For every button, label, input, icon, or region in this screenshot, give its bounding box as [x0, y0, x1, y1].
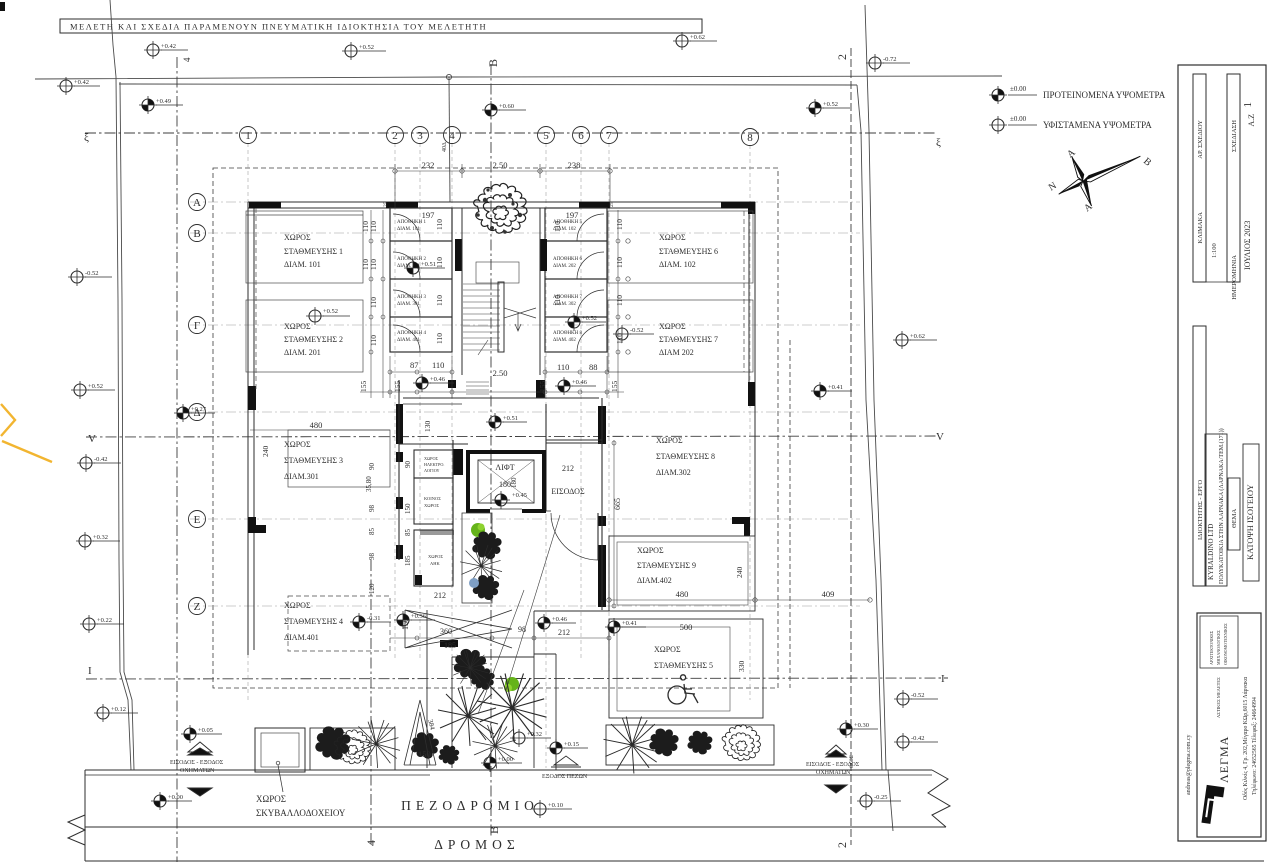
svg-text:0.60Σ: 0.60Σ: [849, 755, 855, 768]
svg-text:ΠΟΛΥΚΑΤΟΙΚΙΑ ΣΤΗΝ ΛΑΡΝΑΚΑ (ΛΑΡ: ΠΟΛΥΚΑΤΟΙΚΙΑ ΣΤΗΝ ΛΑΡΝΑΚΑ (ΛΑΡΝΑΚΑ/ΤΕΜ.(…: [1218, 428, 1225, 584]
svg-text:+0.36: +0.36: [411, 613, 427, 620]
svg-text:ΧΩΡΟΣ: ΧΩΡΟΣ: [284, 601, 311, 610]
svg-text:ΧΩΡΟΣ: ΧΩΡΟΣ: [284, 440, 311, 449]
svg-text:110: 110: [435, 295, 444, 306]
svg-text:ΣΤΑΘΜΕΥΣΗΣ 9: ΣΤΑΘΜΕΥΣΗΣ 9: [637, 561, 696, 570]
svg-text:ΣΤΑΘΜΕΥΣΗΣ 8: ΣΤΑΘΜΕΥΣΗΣ 8: [656, 452, 715, 461]
svg-text:212: 212: [562, 464, 574, 473]
svg-text:ΔΙΑΜ. 102: ΔΙΑΜ. 102: [659, 260, 696, 269]
svg-text:ΔΙΑΜ 202: ΔΙΑΜ 202: [659, 348, 694, 357]
svg-text:232: 232: [422, 160, 435, 170]
svg-text:ΑΠΟΘΗΚΗ 8: ΑΠΟΘΗΚΗ 8: [553, 331, 583, 336]
svg-text:87: 87: [410, 360, 419, 370]
svg-text:360: 360: [440, 627, 452, 636]
svg-text:+0.10: +0.10: [548, 802, 563, 809]
svg-text:1:100: 1:100: [1211, 243, 1218, 258]
svg-text:ΣΚΥΒΑΛΛΟΔΟΧΕΙΟΥ: ΣΚΥΒΑΛΛΟΔΟΧΕΙΟΥ: [256, 808, 346, 818]
svg-text:+0.46: +0.46: [572, 379, 588, 386]
svg-text:±0.00: ±0.00: [1010, 115, 1027, 123]
svg-text:-0.31: -0.31: [367, 615, 381, 622]
svg-text:197: 197: [422, 210, 435, 220]
svg-text:ΣΧΕΔΙΑΣΗ: ΣΧΕΔΙΑΣΗ: [1231, 120, 1238, 152]
svg-text:25: 25: [383, 201, 389, 207]
svg-text:+0.52: +0.52: [582, 315, 597, 322]
svg-text:4: 4: [364, 840, 378, 846]
svg-text:V: V: [88, 433, 96, 445]
svg-text:Γ: Γ: [194, 320, 200, 332]
svg-text:2: 2: [835, 54, 849, 60]
svg-text:+0.12: +0.12: [111, 706, 126, 713]
svg-text:ΛΙΦΤ: ΛΙΦΤ: [495, 463, 514, 472]
svg-text:-0.72: -0.72: [883, 56, 897, 63]
svg-text:+0.52: +0.52: [323, 308, 338, 315]
svg-text:212: 212: [558, 628, 570, 637]
svg-text:40Δ: 40Δ: [442, 142, 448, 152]
svg-text:110: 110: [553, 221, 562, 232]
svg-text:Ι: Ι: [941, 673, 945, 685]
svg-text:Ζ: Ζ: [194, 601, 201, 613]
svg-text:Ι: Ι: [88, 665, 92, 677]
svg-text:+0.42: +0.42: [161, 43, 176, 50]
svg-text:+0.46: +0.46: [430, 376, 446, 383]
svg-text:ΕΙΣΟΔΟΣ: ΕΙΣΟΔΟΣ: [551, 487, 585, 496]
svg-text:ξ: ξ: [936, 137, 941, 149]
svg-text:185: 185: [444, 641, 456, 650]
svg-text:1: 1: [1242, 102, 1254, 108]
svg-text:andreas@plegma.com.cy: andreas@plegma.com.cy: [1186, 734, 1192, 795]
svg-text:2.50: 2.50: [493, 160, 508, 170]
svg-text:1: 1: [245, 130, 251, 142]
svg-text:ΙΟΥΛΙΟΣ 2023: ΙΟΥΛΙΟΣ 2023: [1243, 221, 1252, 270]
svg-text:ΔΙΑΜ.301: ΔΙΑΜ.301: [284, 472, 319, 481]
svg-text:6: 6: [578, 130, 584, 142]
svg-text:110: 110: [432, 360, 444, 370]
svg-text:197: 197: [566, 210, 579, 220]
svg-text:500: 500: [680, 622, 693, 632]
svg-text:-0.25: -0.25: [874, 794, 888, 801]
svg-text:Α: Α: [193, 197, 201, 209]
svg-text:ΗΛΕΚΤΡΟ.: ΗΛΕΚΤΡΟ.: [424, 462, 444, 467]
svg-text:238: 238: [568, 160, 581, 170]
svg-text:2: 2: [392, 130, 398, 142]
svg-text:180: 180: [510, 477, 518, 488]
svg-text:ΣΤΑΘΜΕΥΣΗΣ 5: ΣΤΑΘΜΕΥΣΗΣ 5: [654, 661, 713, 670]
svg-text:ΕΙΣΟΔΟΣ - ΕΞΟΔΟΣ: ΕΙΣΟΔΟΣ - ΕΞΟΔΟΣ: [170, 760, 224, 766]
svg-text:-0.52: -0.52: [85, 270, 99, 277]
svg-text:ΔΙΑΜ.402: ΔΙΑΜ.402: [637, 576, 672, 585]
svg-text:Β: Β: [193, 228, 200, 240]
svg-text:110: 110: [615, 295, 624, 306]
svg-text:240: 240: [735, 567, 744, 579]
svg-text:+0.41: +0.41: [828, 384, 843, 391]
svg-text:ΚΟΙΝΟΣ: ΚΟΙΝΟΣ: [424, 496, 441, 501]
svg-text:85: 85: [368, 528, 376, 536]
svg-text:88: 88: [589, 362, 598, 372]
svg-text:KYRALDINO LTD: KYRALDINO LTD: [1207, 524, 1215, 580]
svg-text:110: 110: [361, 221, 370, 232]
svg-text:-0.42: -0.42: [94, 456, 108, 463]
svg-text:ΔΙΑΜ. 201: ΔΙΑΜ. 201: [284, 348, 321, 357]
svg-text:480: 480: [310, 420, 323, 430]
svg-text:Οδός Κιλκίς 4, Γρ. 202,Μέγαρο: Οδός Κιλκίς 4, Γρ. 202,Μέγαρο ΚΩρ,6015 Λ…: [1243, 677, 1249, 800]
svg-text:110: 110: [369, 297, 378, 308]
svg-text:185: 185: [404, 555, 412, 566]
svg-text:ΧΩΡΟΣ: ΧΩΡΟΣ: [659, 233, 686, 242]
svg-text:5: 5: [543, 130, 549, 142]
svg-text:ΧΩΡΟΣ: ΧΩΡΟΣ: [654, 645, 681, 654]
svg-text:+0.60: +0.60: [499, 103, 514, 110]
svg-text:25: 25: [609, 201, 615, 207]
svg-text:-0.52: -0.52: [911, 692, 925, 699]
svg-text:+0.62: +0.62: [910, 333, 925, 340]
svg-text:+0.51: +0.51: [503, 415, 518, 422]
svg-text:+0.62: +0.62: [690, 34, 705, 41]
svg-text:ΑΣΤΙΚΕΣ ΜΕΛΕΤΕΣ: ΑΣΤΙΚΕΣ ΜΕΛΕΤΕΣ: [1216, 677, 1221, 718]
svg-text:ΟΧΗΜΑΤΩΝ: ΟΧΗΜΑΤΩΝ: [816, 770, 851, 776]
svg-text:+0.00: +0.00: [498, 756, 513, 763]
svg-text:ΚΑΤΟΨΗ ΙΣΟΓΕΙΟΥ: ΚΑΤΟΨΗ ΙΣΟΓΕΙΟΥ: [1245, 484, 1255, 560]
svg-text:ΧΩΡΟΣ: ΧΩΡΟΣ: [659, 322, 686, 331]
svg-text:ΔΙΑΜ.302: ΔΙΑΜ.302: [656, 468, 691, 477]
svg-text:ΠΕΖΟΔΡΟΜΙΟ: ΠΕΖΟΔΡΟΜΙΟ: [401, 798, 539, 813]
svg-text:V: V: [936, 431, 944, 443]
svg-text:+0.27: +0.27: [191, 406, 207, 413]
svg-text:ΑΠΟΘΗΚΗ 4: ΑΠΟΘΗΚΗ 4: [397, 331, 427, 336]
svg-text:+0.51: +0.51: [421, 261, 436, 268]
svg-text:ΣΤΑΘΜΕΥΣΗΣ 1: ΣΤΑΘΜΕΥΣΗΣ 1: [284, 247, 343, 256]
svg-text:2: 2: [835, 842, 849, 848]
svg-text:ΧΩΡΟΣ: ΧΩΡΟΣ: [637, 546, 664, 555]
svg-text:ΧΩΡΟΣ: ΧΩΡΟΣ: [284, 322, 311, 331]
svg-text:+0.05: +0.05: [198, 727, 213, 734]
svg-text:+0.49: +0.49: [156, 98, 171, 105]
svg-text:Ε: Ε: [194, 514, 201, 526]
svg-text:110: 110: [369, 259, 378, 270]
svg-text:110: 110: [435, 257, 444, 268]
svg-text:ΟΧΗΜΑΤΩΝ: ΟΧΗΜΑΤΩΝ: [180, 768, 215, 774]
svg-text:+0.30: +0.30: [854, 722, 869, 729]
svg-text:3: 3: [417, 130, 423, 142]
svg-text:+0.15: +0.15: [564, 741, 579, 748]
svg-text:ΑΡΧΙΤΕΚΤΟΝΙΚΕΣ: ΑΡΧΙΤΕΚΤΟΝΙΚΕΣ: [1209, 630, 1214, 665]
svg-text:98: 98: [368, 553, 376, 561]
svg-text:ΑΠΟΘΗΚΗ 6: ΑΠΟΘΗΚΗ 6: [553, 257, 583, 262]
svg-text:110: 110: [557, 362, 569, 372]
svg-text:±0.00: ±0.00: [1010, 85, 1027, 93]
svg-text:8: 8: [747, 132, 753, 144]
svg-text:ΛΕΓΜΑ: ΛΕΓΜΑ: [1217, 736, 1231, 783]
svg-text:+0.42: +0.42: [74, 79, 89, 86]
svg-text:130: 130: [423, 421, 432, 433]
svg-text:110: 110: [361, 259, 370, 270]
svg-text:110: 110: [369, 335, 378, 346]
svg-text:212: 212: [434, 591, 446, 600]
svg-text:+0.52: +0.52: [359, 44, 374, 51]
svg-text:ΟΙΚΟΝΟΜΟΤΕΧΝΙΚΕΣ: ΟΙΚΟΝΟΜΟΤΕΧΝΙΚΕΣ: [1223, 623, 1228, 665]
svg-text:409: 409: [822, 589, 835, 599]
svg-text:155: 155: [359, 381, 368, 393]
svg-text:ΣΤΑΘΜΕΥΣΗΣ 7: ΣΤΑΘΜΕΥΣΗΣ 7: [659, 335, 718, 344]
svg-text:ΣΤΑΘΜΕΥΣΗΣ 4: ΣΤΑΘΜΕΥΣΗΣ 4: [284, 617, 343, 626]
svg-text:155: 155: [538, 381, 547, 393]
svg-text:ΠΡΟΤΕΙΝΟΜΕΝΑ ΥΨΟΜΕΤΡΑ: ΠΡΟΤΕΙΝΟΜΕΝΑ ΥΨΟΜΕΤΡΑ: [1043, 90, 1166, 100]
svg-text:+0.32: +0.32: [93, 534, 108, 541]
svg-text:ΘΕΜΑ: ΘΕΜΑ: [1231, 509, 1238, 528]
svg-text:ΧΩΡΟΣ: ΧΩΡΟΣ: [256, 794, 286, 804]
svg-text:-0.52: -0.52: [630, 327, 644, 334]
svg-text:ΕΞΟΔΟΣ ΠΕΖΩΝ: ΕΞΟΔΟΣ ΠΕΖΩΝ: [542, 774, 588, 780]
svg-text:110: 110: [435, 333, 444, 344]
svg-text:ΧΩΡΟΣ: ΧΩΡΟΣ: [656, 436, 683, 445]
svg-text:110: 110: [615, 257, 624, 268]
svg-text:150: 150: [418, 749, 431, 759]
svg-text:ΗΜΕΡΟΜΗΝΙΑ: ΗΜΕΡΟΜΗΝΙΑ: [1231, 255, 1238, 300]
svg-text:480: 480: [676, 589, 689, 599]
svg-text:Α.Ζ: Α.Ζ: [1247, 114, 1256, 127]
svg-text:ΥΦΙΣΤΑΜΕΝΑ ΥΨΟΜΕΤΡΑ: ΥΦΙΣΤΑΜΕΝΑ ΥΨΟΜΕΤΡΑ: [1043, 120, 1152, 130]
svg-text:ΔΙΑΜ. 202: ΔΙΑΜ. 202: [553, 264, 576, 269]
svg-text:330: 330: [737, 661, 746, 673]
svg-text:155: 155: [393, 381, 402, 393]
svg-text:ΧΩΡΟΣ: ΧΩΡΟΣ: [424, 503, 439, 508]
svg-text:90: 90: [368, 463, 376, 471]
svg-text:2.50: 2.50: [493, 368, 508, 378]
svg-text:110: 110: [435, 219, 444, 230]
svg-text:120: 120: [368, 583, 376, 594]
svg-text:155: 155: [610, 381, 619, 393]
svg-text:-0.42: -0.42: [911, 735, 925, 742]
svg-text:ΧΩΡΟΣ: ΧΩΡΟΣ: [284, 233, 311, 242]
svg-text:+0.52: +0.52: [823, 101, 838, 108]
svg-text:ΚΛΙΜΑΚΑ: ΚΛΙΜΑΚΑ: [1197, 212, 1204, 244]
svg-text:ΔΙΑΜ. 402: ΔΙΑΜ. 402: [553, 338, 576, 343]
svg-text:4: 4: [182, 57, 192, 62]
svg-text:ΧΩΡΟΣ: ΧΩΡΟΣ: [424, 456, 438, 461]
svg-text:7: 7: [606, 130, 612, 142]
svg-text:+0.41: +0.41: [622, 620, 637, 627]
svg-text:ΑΗΚ: ΑΗΚ: [430, 561, 440, 566]
svg-text:ΧΩΡΟΣ: ΧΩΡΟΣ: [428, 554, 443, 559]
svg-text:+0.52: +0.52: [88, 383, 103, 390]
svg-text:ΙΔΙΟΚΤΗΤΗΣ - ΕΡΓΟ: ΙΔΙΟΚΤΗΤΗΣ - ΕΡΓΟ: [1197, 480, 1204, 540]
svg-text:ξ: ξ: [84, 132, 89, 144]
svg-text:ΣΤΑΘΜΕΥΣΗΣ 3: ΣΤΑΘΜΕΥΣΗΣ 3: [284, 456, 343, 465]
svg-text:ΜΕΛΕΤΗ ΚΑΙ ΣΧΕΔΙΑ ΠΑΡΑΜΕΝΟΥΝ Π: ΜΕΛΕΤΗ ΚΑΙ ΣΧΕΔΙΑ ΠΑΡΑΜΕΝΟΥΝ ΠΝΕΥΜΑΤΙΚΗ …: [70, 22, 487, 32]
svg-text:+0.45: +0.45: [512, 492, 527, 499]
svg-text:4: 4: [449, 130, 455, 142]
svg-text:110: 110: [553, 295, 562, 306]
svg-text:98: 98: [518, 625, 526, 634]
svg-text:+0.00: +0.00: [168, 794, 183, 801]
svg-text:98: 98: [368, 505, 376, 513]
svg-text:ΔΙΑΜ. 101: ΔΙΑΜ. 101: [284, 260, 321, 269]
svg-text:ΔΡΟΜΟΣ: ΔΡΟΜΟΣ: [434, 837, 520, 852]
svg-text:Τηλέφωνο: 24652565 Τέλεφαξ:: Τηλέφωνο: 24652565 Τέλεφαξ: 24664994: [1252, 697, 1258, 795]
svg-text:Β: Β: [486, 59, 500, 67]
svg-text:ΔΙΑΜ.401: ΔΙΑΜ.401: [284, 633, 319, 642]
svg-text:ΑΡ. ΣΧΕΔΙΟΥ: ΑΡ. ΣΧΕΔΙΟΥ: [1197, 120, 1204, 159]
svg-text:ΜΗΧΑΝΟΛΟΓΙΚΕΣ: ΜΗΧΑΝΟΛΟΓΙΚΕΣ: [1216, 630, 1221, 665]
svg-text:110: 110: [615, 219, 624, 230]
svg-text:150: 150: [404, 503, 412, 514]
svg-text:110: 110: [369, 221, 378, 232]
svg-text:+0.22: +0.22: [97, 617, 112, 624]
svg-text:+0.32: +0.32: [527, 731, 542, 738]
svg-text:85: 85: [404, 529, 412, 537]
svg-text:240: 240: [261, 446, 270, 458]
svg-text:90: 90: [404, 461, 412, 469]
svg-text:ΑΠΟΘΗΚΗ 1: ΑΠΟΘΗΚΗ 1: [397, 220, 427, 225]
svg-text:ΛΟΓΙΟΥ: ΛΟΓΙΟΥ: [424, 468, 440, 473]
svg-text:ΣΤΑΘΜΕΥΣΗΣ 6: ΣΤΑΘΜΕΥΣΗΣ 6: [659, 247, 718, 256]
svg-text:35,80: 35,80: [365, 476, 373, 492]
svg-text:+0.46: +0.46: [552, 616, 568, 623]
svg-text:665: 665: [613, 498, 622, 510]
svg-text:ΣΤΑΘΜΕΥΣΗΣ 2: ΣΤΑΘΜΕΥΣΗΣ 2: [284, 335, 343, 344]
